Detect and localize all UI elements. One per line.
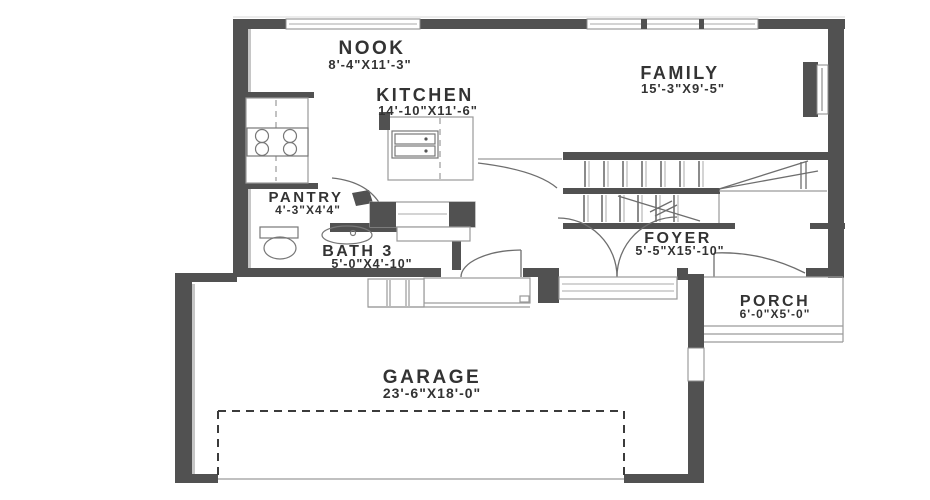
family-label: FAMILY: [640, 63, 719, 83]
window-mullion: [699, 19, 704, 29]
garage-entry-door-arc: [461, 250, 521, 277]
foyer-dims: 5'-5"X15'-10": [635, 244, 724, 258]
entry-door-sill: [559, 277, 677, 299]
floor-plan-image: NOOK 8'-4"X11'-3" KITCHEN 14'-10"X11'-6"…: [0, 0, 930, 500]
kitchen-label: KITCHEN: [376, 85, 474, 105]
porch-door-arc: [714, 253, 805, 273]
hall-arch: [478, 163, 557, 188]
stair-direction-line: [618, 196, 700, 221]
toilet-bowl: [264, 237, 296, 259]
room-labels: NOOK 8'-4"X11'-3" KITCHEN 14'-10"X11'-6"…: [269, 38, 811, 401]
kitchen-fixtures: [246, 98, 475, 241]
porch-dims: 6'-0"X5'-0": [740, 307, 811, 321]
kitchen-dims: 14'-10"X11'-6": [378, 103, 478, 118]
nook-dims: 8'-4"X11'-3": [328, 57, 411, 72]
bath3-dims: 5'-0"X4'-10": [331, 257, 412, 271]
garage-steps: [368, 279, 424, 307]
nook-label: NOOK: [339, 38, 406, 59]
garage-landing: [424, 278, 530, 303]
hall-counter-shelf: [397, 227, 470, 241]
kitchen-island: [388, 117, 473, 180]
stairs-upper-run: [585, 161, 703, 187]
window-mullion: [641, 19, 647, 29]
toilet-tank: [260, 227, 298, 238]
garage-dims: 23'-6"X18'-0": [383, 385, 481, 401]
garage-wall-window: [688, 348, 704, 381]
floor-plan: NOOK 8'-4"X11'-3" KITCHEN 14'-10"X11'-6"…: [0, 0, 930, 500]
family-dims: 15'-3"X9'-5": [641, 81, 725, 96]
pantry-dims: 4'-3"X4'4": [275, 203, 341, 217]
